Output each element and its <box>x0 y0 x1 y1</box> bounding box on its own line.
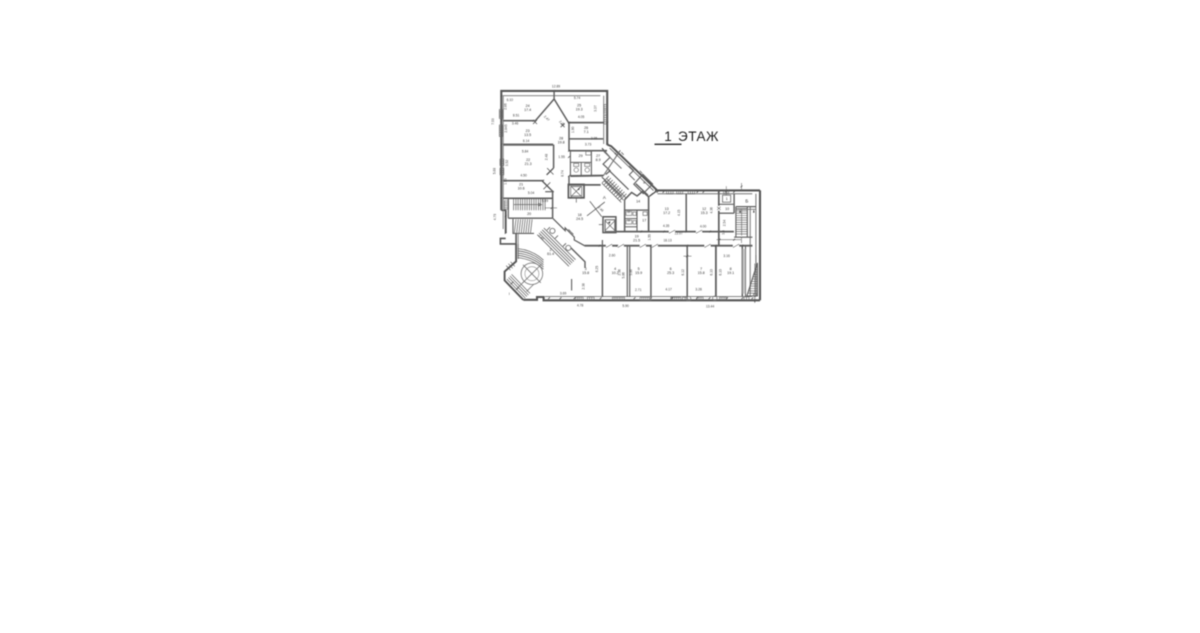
svg-text:6.10: 6.10 <box>709 269 713 276</box>
svg-text:15.8: 15.8 <box>698 271 705 275</box>
svg-text:4.17: 4.17 <box>665 288 672 292</box>
svg-text:15.3: 15.3 <box>701 211 708 215</box>
svg-text:2.54: 2.54 <box>722 220 726 227</box>
svg-text:8.74: 8.74 <box>561 170 565 177</box>
svg-text:3.16: 3.16 <box>723 254 730 258</box>
svg-text:Б: Б <box>745 199 748 204</box>
svg-text:2.71: 2.71 <box>635 288 642 292</box>
svg-text:5.09: 5.09 <box>542 199 549 203</box>
svg-text:10: 10 <box>725 207 729 211</box>
svg-text:24.5: 24.5 <box>576 217 583 221</box>
svg-text:3.37: 3.37 <box>594 105 598 112</box>
svg-text:19.3: 19.3 <box>576 108 583 112</box>
svg-text:17: 17 <box>642 219 646 223</box>
svg-text:1.93: 1.93 <box>504 178 508 185</box>
svg-text:13.97: 13.97 <box>674 232 682 236</box>
svg-text:2.86: 2.86 <box>504 103 508 110</box>
svg-text:6.10: 6.10 <box>507 98 514 102</box>
svg-text:15: 15 <box>627 210 630 214</box>
svg-text:8.9: 8.9 <box>596 158 601 162</box>
svg-text:14: 14 <box>636 199 640 203</box>
svg-text:6.25: 6.25 <box>595 266 599 273</box>
svg-text:3.4: 3.4 <box>721 230 725 235</box>
svg-text:15.9: 15.9 <box>635 271 642 275</box>
svg-text:4.05: 4.05 <box>578 115 585 119</box>
svg-text:3.95: 3.95 <box>591 136 598 140</box>
svg-text:16: 16 <box>627 218 630 222</box>
svg-text:4.00: 4.00 <box>700 225 707 229</box>
svg-text:1: 1 <box>664 129 672 144</box>
svg-text:1.55: 1.55 <box>558 155 565 159</box>
svg-text:17.4: 17.4 <box>524 108 531 112</box>
svg-text:3.73: 3.73 <box>585 142 592 146</box>
svg-text:4.78: 4.78 <box>577 303 584 307</box>
svg-text:5.84: 5.84 <box>522 149 529 153</box>
svg-text:3.46: 3.46 <box>512 121 519 125</box>
svg-text:21.5: 21.5 <box>633 239 640 243</box>
svg-text:5.74: 5.74 <box>574 96 581 100</box>
svg-text:2.60: 2.60 <box>609 254 616 258</box>
svg-text:5.88: 5.88 <box>493 168 497 175</box>
svg-text:I: I <box>509 292 510 296</box>
svg-text:19.1: 19.1 <box>727 271 734 275</box>
svg-text:7.03: 7.03 <box>491 118 495 125</box>
svg-text:2.48: 2.48 <box>544 154 548 161</box>
svg-text:6.14: 6.14 <box>523 139 530 143</box>
svg-text:4.50: 4.50 <box>520 173 527 177</box>
svg-text:5.86: 5.86 <box>629 269 633 276</box>
svg-text:3.28: 3.28 <box>695 288 702 292</box>
svg-text:21.3: 21.3 <box>525 162 532 166</box>
svg-text:13.44: 13.44 <box>706 304 714 308</box>
svg-text:20: 20 <box>527 212 531 216</box>
svg-text:17.2: 17.2 <box>663 211 670 215</box>
svg-text:6.12: 6.12 <box>681 269 685 276</box>
svg-text:7.1: 7.1 <box>584 130 589 134</box>
svg-text:1.90: 1.90 <box>571 126 575 133</box>
svg-text:10.6: 10.6 <box>518 187 525 191</box>
svg-text:8.51: 8.51 <box>513 114 520 118</box>
svg-text:5.90: 5.90 <box>622 304 629 308</box>
svg-text:25.3: 25.3 <box>667 271 674 275</box>
svg-text:1.55: 1.55 <box>647 234 651 241</box>
svg-text:А: А <box>603 195 606 200</box>
svg-text:13.5: 13.5 <box>524 133 531 137</box>
svg-text:4.79: 4.79 <box>493 214 497 221</box>
svg-text:2.845: 2.845 <box>504 124 508 132</box>
svg-text:3.52: 3.52 <box>505 160 509 167</box>
svg-text:5.04: 5.04 <box>528 191 535 195</box>
svg-text:2.38: 2.38 <box>581 283 585 290</box>
svg-text:61.4: 61.4 <box>547 252 554 256</box>
svg-text:4.35: 4.35 <box>663 224 670 228</box>
svg-text:19.8: 19.8 <box>558 141 565 145</box>
svg-text:16.13: 16.13 <box>663 239 671 243</box>
svg-text:12.89: 12.89 <box>552 85 560 89</box>
svg-text:15.8: 15.8 <box>582 271 589 275</box>
svg-text:29: 29 <box>579 154 583 158</box>
svg-text:4.15: 4.15 <box>677 209 681 216</box>
svg-text:1: 1 <box>726 197 728 201</box>
svg-text:3.69: 3.69 <box>560 291 567 295</box>
svg-text:6.10: 6.10 <box>718 269 722 276</box>
svg-text:ЭТАЖ: ЭТАЖ <box>678 129 719 144</box>
svg-text:4.36: 4.36 <box>710 207 714 214</box>
svg-text:5.86: 5.86 <box>621 272 625 279</box>
